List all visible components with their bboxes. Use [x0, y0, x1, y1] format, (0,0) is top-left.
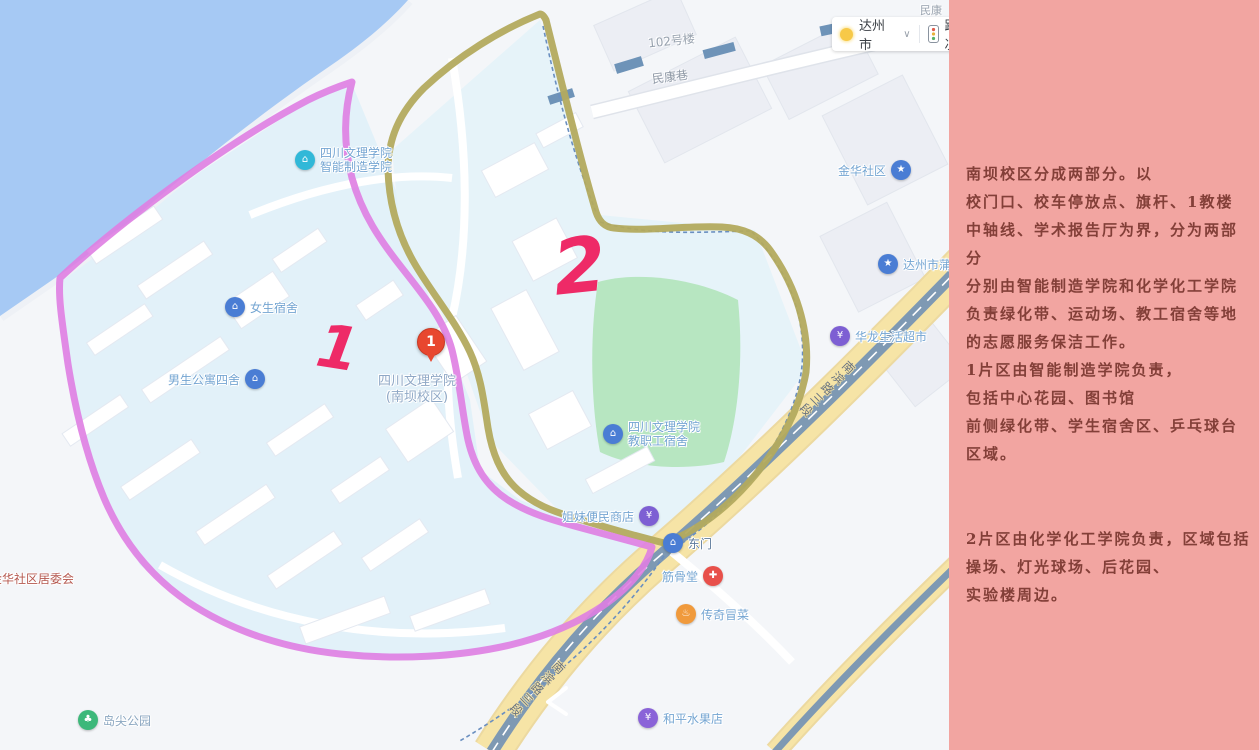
dorm-icon: ⌂: [603, 424, 623, 444]
shop-icon: ¥: [639, 506, 659, 526]
poi-heping-fruit[interactable]: ¥ 和平水果店: [638, 708, 723, 728]
poi-staff-dorm[interactable]: ⌂ 四川文理学院 教职工宿舍: [603, 420, 700, 448]
poi-jinhua-committee[interactable]: 金华社区居委会: [0, 570, 74, 587]
red-pin-icon[interactable]: 1: [417, 328, 445, 356]
poi-label: (南坝校区): [378, 390, 456, 406]
poi-label: 传奇冒菜: [701, 606, 749, 623]
food-icon: ♨: [676, 604, 696, 624]
poi-daojian-park[interactable]: ♣ 岛尖公园: [78, 710, 151, 730]
poi-label: 东门: [688, 535, 712, 552]
poi-boys-dorm[interactable]: 男生公寓四舍 ⌂: [168, 369, 265, 389]
poi-label: 男生公寓四舍: [168, 371, 240, 388]
map-canvas[interactable]: 1 2 ⌂ 四川文理学院 智能制造学院 ⌂ 女生宿舍 男生公寓四舍 ⌂ 1 四川…: [0, 0, 949, 750]
city-poi-icon: ★: [878, 254, 898, 274]
basemap-graphics: 1 2: [0, 0, 949, 750]
poi-chuanqi-food[interactable]: ♨ 传奇冒菜: [676, 604, 749, 624]
traffic-light-icon: [928, 25, 939, 43]
notes-line: 操场、灯光球场、后花园、: [966, 553, 1251, 581]
park-icon: ♣: [78, 710, 98, 730]
poi-girls-dorm[interactable]: ⌂ 女生宿舍: [225, 297, 298, 317]
divider: [919, 25, 920, 43]
notes-line: 前侧绿化带、学生宿舍区、乒乓球台: [966, 412, 1251, 440]
notes-line: 实验楼周边。: [966, 581, 1251, 609]
fruit-icon: ¥: [638, 708, 658, 728]
poi-dazhou-clipped[interactable]: ★ 达州市蒲: [878, 254, 949, 274]
poi-label: 岛尖公园: [103, 712, 151, 729]
dorm-icon: ⌂: [225, 297, 245, 317]
notes-line: 南坝校区分成两部分。以: [966, 160, 1251, 188]
notes-line: 分别由智能制造学院和化学化工学院: [966, 272, 1251, 300]
poi-jingu-clinic[interactable]: 筋骨堂 ✚: [662, 566, 723, 586]
notes-line: 2片区由化学化工学院负责，区域包括: [966, 525, 1251, 553]
poi-label: 智能制造学院: [320, 160, 392, 174]
screenshot-root: 1 2 ⌂ 四川文理学院 智能制造学院 ⌂ 女生宿舍 男生公寓四舍 ⌂ 1 四川…: [0, 0, 1259, 750]
school-icon: ⌂: [295, 150, 315, 170]
community-icon: ★: [891, 160, 911, 180]
dorm-icon: ⌂: [245, 369, 265, 389]
poi-label: 姐妹便民商店: [562, 508, 634, 525]
notes-gap: [966, 468, 1251, 525]
notes-panel: 南坝校区分成两部分。以 校门口、校车停放点、旗杆、1教楼 中轴线、学术报告厅为界…: [949, 0, 1259, 750]
poi-east-gate[interactable]: ⌂ 东门: [663, 533, 712, 553]
zone2-number: 2: [549, 219, 611, 313]
gate-icon: ⌂: [663, 533, 683, 553]
poi-zhineng-college[interactable]: ⌂ 四川文理学院 智能制造学院: [295, 146, 392, 174]
notes-line: 包括中心花园、图书馆: [966, 384, 1251, 412]
notes-line: 负责绿化带、运动场、教工宿舍等地: [966, 300, 1251, 328]
map-control-bar: 达州市 ∨ 路况: [832, 17, 949, 51]
poi-label: 四川文理学院: [320, 146, 392, 160]
poi-jinhua-community[interactable]: 金华社区 ★: [838, 160, 911, 180]
poi-label: 女生宿舍: [250, 299, 298, 316]
shop-icon: ¥: [830, 326, 850, 346]
poi-label: 华龙生活超市: [855, 328, 927, 345]
poi-label: 筋骨堂: [662, 568, 698, 585]
notes-line: 1片区由智能制造学院负责，: [966, 356, 1251, 384]
notes-line: 中轴线、学术报告厅为界，分为两部分: [966, 216, 1251, 272]
notes-line: 的志愿服务保洁工作。: [966, 328, 1251, 356]
city-selector[interactable]: 达州市: [859, 15, 897, 53]
poi-label: 金华社区居委会: [0, 570, 74, 587]
poi-label: 达州市蒲: [903, 256, 949, 273]
chevron-down-icon[interactable]: ∨: [903, 29, 910, 40]
notes-line: 区域。: [966, 440, 1251, 468]
notes-text: 南坝校区分成两部分。以 校门口、校车停放点、旗杆、1教楼 中轴线、学术报告厅为界…: [966, 160, 1251, 609]
poi-label: 和平水果店: [663, 710, 723, 727]
label-minkang-partial: 民康: [920, 2, 942, 18]
sun-icon: [840, 28, 853, 41]
pin-number: 1: [426, 334, 436, 350]
notes-line: 校门口、校车停放点、旗杆、1教楼: [966, 188, 1251, 216]
poi-campus-name[interactable]: 四川文理学院 (南坝校区): [378, 374, 456, 406]
poi-label: 教职工宿舍: [628, 434, 700, 448]
poi-hualong-market[interactable]: ¥ 华龙生活超市: [830, 326, 927, 346]
clinic-icon: ✚: [703, 566, 723, 586]
poi-jiemei-store[interactable]: 姐妹便民商店 ¥: [562, 506, 659, 526]
poi-label: 金华社区: [838, 162, 886, 179]
poi-label: 四川文理学院: [628, 420, 700, 434]
poi-label: 四川文理学院: [378, 374, 456, 390]
